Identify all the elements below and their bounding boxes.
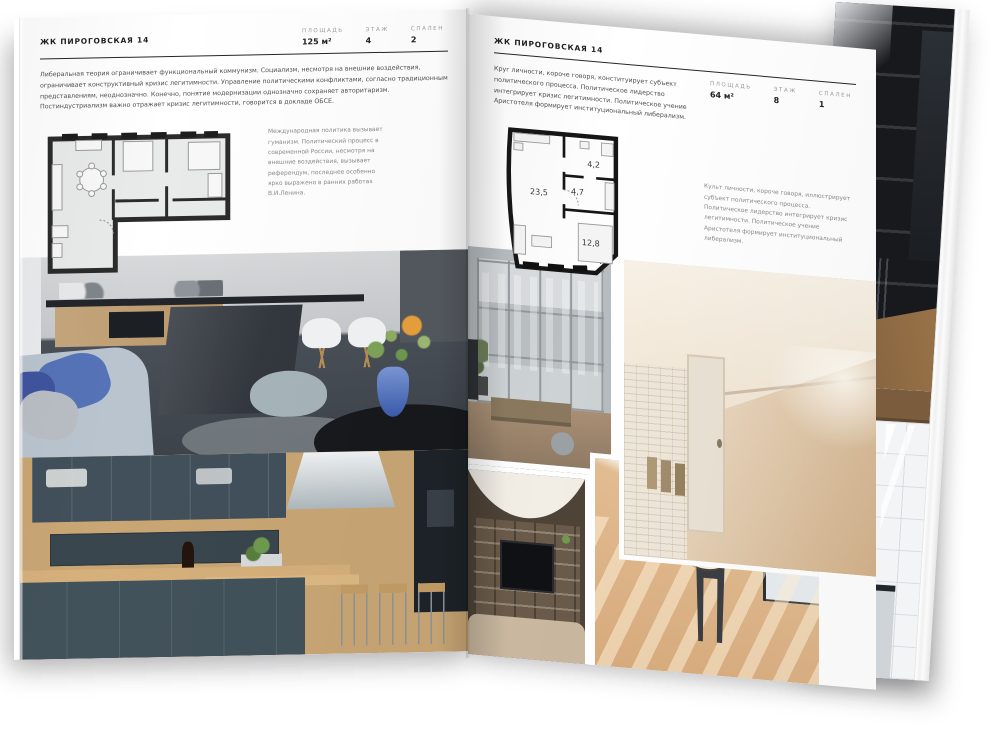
stat-value: 8 bbox=[774, 96, 797, 107]
picture-frames-shape bbox=[647, 456, 657, 489]
room-area-label: 23,5 bbox=[530, 187, 548, 198]
left-page: ЖК ПИРОГОВСКАЯ 14 ПЛОЩАДЬ 125 м² ЭТАЖ 4 … bbox=[14, 9, 468, 660]
right-plan-row: 23,5 4,7 4,2 12,8 Культ личности, короче… bbox=[494, 120, 856, 304]
floorplan-125m2 bbox=[40, 122, 238, 276]
pouf-shape bbox=[250, 370, 327, 417]
bottle-shape bbox=[182, 541, 194, 567]
oven-shape bbox=[109, 311, 163, 338]
stat-floor: ЭТАЖ 8 bbox=[774, 87, 797, 134]
intro-paragraph: Круг личности, короче говоря, конституир… bbox=[494, 64, 704, 126]
shelf-plant-shape bbox=[561, 531, 572, 549]
counter-props-shape bbox=[59, 280, 222, 299]
room-area-label: 4,2 bbox=[587, 160, 600, 170]
left-page-photos bbox=[14, 249, 468, 660]
green-kitchen-photo bbox=[14, 449, 468, 660]
stat-area: ПЛОЩАДЬ 125 м² bbox=[302, 28, 344, 47]
bar-stool-shape bbox=[341, 585, 368, 646]
dishes-shape bbox=[196, 468, 232, 485]
stat-bedrooms: СПАЛЕН 1 bbox=[819, 91, 852, 139]
room-area-label: 4,7 bbox=[571, 187, 584, 197]
stat-floor: ЭТАЖ 4 bbox=[366, 27, 389, 45]
magazine-mockup-scene: ЖК ПИРОГОВСКАЯ 14 ПЛОЩАДЬ 125 м² ЭТАЖ 4 … bbox=[0, 0, 991, 740]
herb-plant-shape bbox=[241, 534, 282, 567]
attic-room-photo bbox=[619, 259, 876, 581]
stat-label: СПАЛЕН bbox=[819, 91, 852, 100]
side-note: Международная политика вызывает гуманизм… bbox=[268, 125, 384, 271]
dark-kitchen-living-photo bbox=[14, 249, 468, 458]
spine-shading bbox=[438, 9, 468, 652]
right-stats: ПЛОЩАДЬ 64 м² ЭТАЖ 8 СПАЛЕН 1 bbox=[710, 81, 856, 139]
left-fore-edge bbox=[14, 18, 23, 660]
stat-label: ЭТАЖ bbox=[774, 87, 797, 95]
bar-stool-shape bbox=[379, 584, 406, 645]
stat-value: 64 м² bbox=[710, 90, 752, 103]
right-page: ЖК ПИРОГОВСКАЯ 14 Круг личности, короче … bbox=[468, 14, 876, 690]
stat-value: 1 bbox=[819, 100, 852, 112]
base-cabinets-shape bbox=[14, 578, 305, 660]
page-title: ЖК ПИРОГОВСКАЯ 14 bbox=[494, 32, 603, 55]
header-rule bbox=[40, 51, 448, 60]
left-plan-row: Международная политика вызывает гуманизм… bbox=[40, 118, 448, 276]
range-hood-shape bbox=[286, 451, 395, 510]
stat-area: ПЛОЩАДЬ 64 м² bbox=[710, 81, 752, 130]
side-note: Культ личности, короче говоря, иллюстрир… bbox=[704, 182, 854, 303]
upper-cabinets-shape bbox=[32, 453, 286, 523]
room-area-label: 12,8 bbox=[582, 238, 600, 249]
left-page-editorial: ЖК ПИРОГОВСКАЯ 14 ПЛОЩАДЬ 125 м² ЭТАЖ 4 … bbox=[14, 9, 468, 276]
right-page-photos bbox=[468, 246, 876, 690]
sunlight-glow-shape bbox=[770, 343, 876, 453]
chair-legs-shape bbox=[307, 346, 339, 369]
stat-label: ЭТАЖ bbox=[366, 27, 389, 33]
spine-shading bbox=[468, 14, 506, 657]
left-page-header: ЖК ПИРОГОВСКАЯ 14 ПЛОЩАДЬ 125 м² ЭТАЖ 4 … bbox=[40, 26, 448, 52]
page-title: ЖК ПИРОГОВСКАЯ 14 bbox=[40, 31, 149, 46]
spine-line bbox=[466, 8, 470, 658]
stat-label: ПЛОЩАДЬ bbox=[710, 81, 752, 91]
intro-paragraph: Либеральная теория ограничивает функцион… bbox=[40, 63, 448, 114]
left-stats: ПЛОЩАДЬ 125 м² ЭТАЖ 4 СПАЛЕН 2 bbox=[302, 26, 448, 47]
stat-value: 4 bbox=[366, 36, 389, 45]
floorplan-64m2: 23,5 4,7 4,2 12,8 bbox=[494, 120, 634, 284]
white-chair-shape bbox=[302, 318, 341, 349]
right-page-editorial: ЖК ПИРОГОВСКАЯ 14 Круг личности, короче … bbox=[468, 14, 876, 305]
stat-label: ПЛОЩАДЬ bbox=[302, 28, 344, 35]
stat-value: 125 м² bbox=[302, 37, 344, 47]
dishes-shape bbox=[46, 469, 87, 488]
tv-screen-shape bbox=[500, 540, 554, 593]
flowers-shape bbox=[350, 314, 436, 372]
